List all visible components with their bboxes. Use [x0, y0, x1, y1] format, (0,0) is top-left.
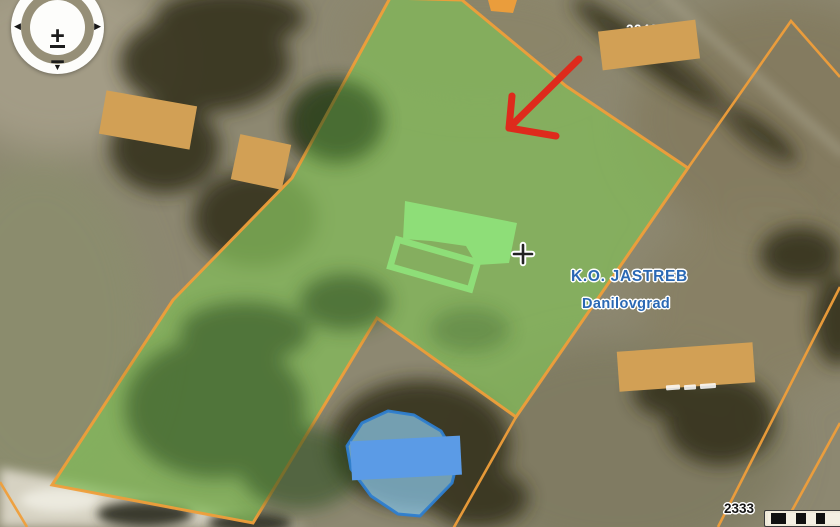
settlement-label: Danilovgrad: [582, 296, 670, 312]
scale-segment: [786, 513, 796, 524]
zoom-disc: + −: [30, 0, 85, 55]
label-mask-blue: [350, 436, 462, 481]
label-mask-orange-top: [488, 0, 517, 13]
scale-segment: [796, 513, 806, 524]
map-scale-bar: [764, 510, 840, 527]
pan-right-button[interactable]: ▶: [94, 22, 101, 31]
scale-segment: [816, 513, 825, 524]
scale-segment: [806, 513, 816, 524]
zoom-divider-line: [50, 45, 65, 48]
scale-segment: [825, 513, 840, 524]
cadastral-municipality-label: K.O. JASTREB: [571, 268, 688, 286]
aerial-map-canvas: 2240: [0, 0, 840, 527]
pan-zoom-control[interactable]: ◀ ▶ ▼ + −: [11, 0, 104, 74]
scale-segment: [771, 513, 786, 524]
parcel-number-label: 2333: [724, 501, 754, 516]
map-viewport[interactable]: 2240: [0, 0, 840, 527]
pan-left-button[interactable]: ◀: [14, 22, 21, 31]
zoom-out-button[interactable]: −: [30, 50, 85, 75]
